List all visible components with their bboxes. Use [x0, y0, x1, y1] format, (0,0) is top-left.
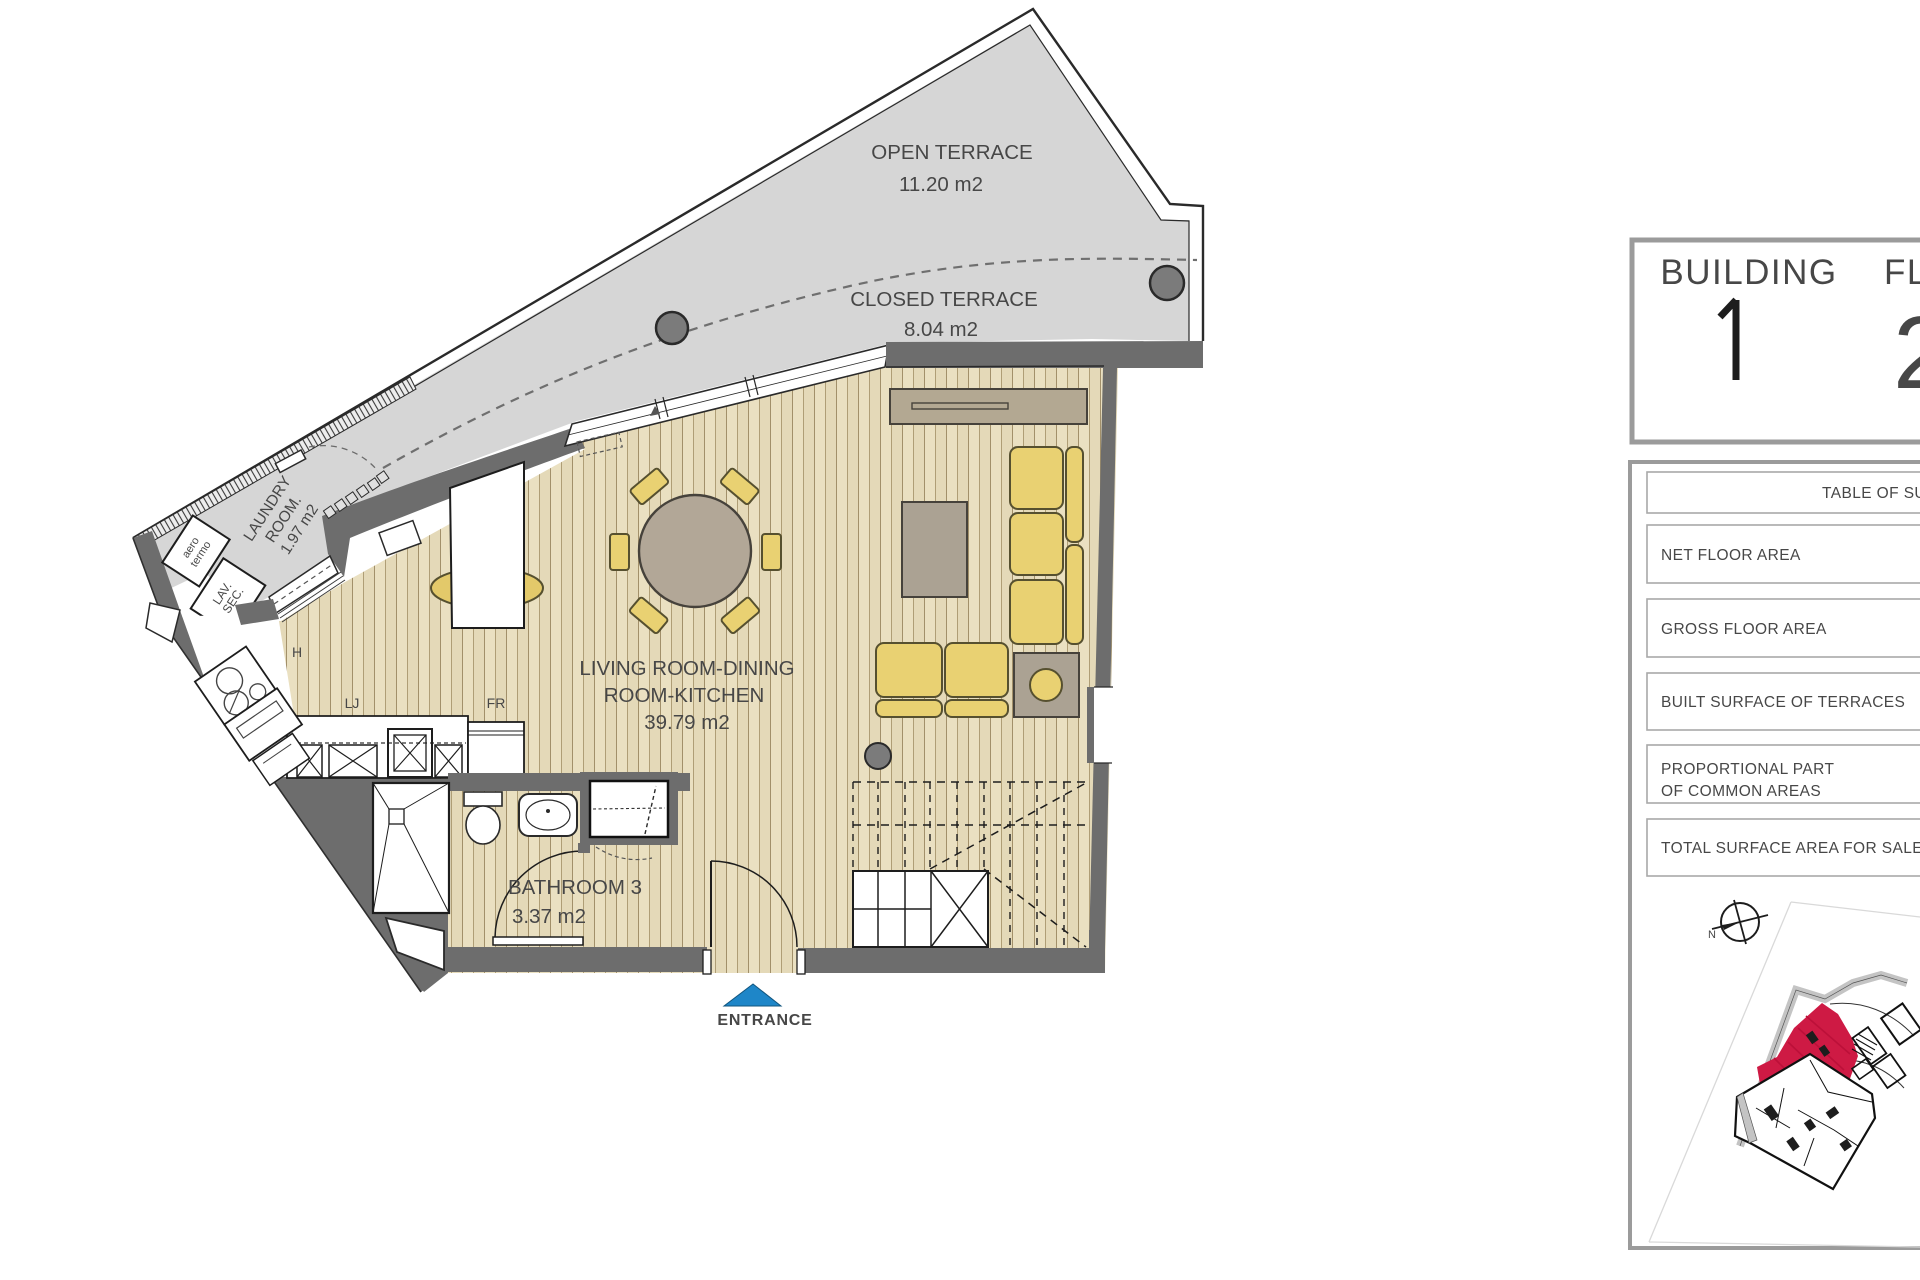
svg-text:8.04 m2: 8.04 m2	[904, 318, 978, 341]
svg-text:BUILDING: BUILDING	[1660, 253, 1837, 292]
svg-text:FR: FR	[487, 695, 506, 711]
svg-text:CLOSED TERRACE: CLOSED TERRACE	[850, 288, 1038, 311]
svg-text:NET FLOOR AREA: NET FLOOR AREA	[1661, 547, 1801, 564]
svg-text:39.79 m2: 39.79 m2	[644, 711, 729, 734]
svg-text:LJ: LJ	[345, 695, 360, 711]
svg-text:11.20 m2: 11.20 m2	[899, 173, 983, 196]
svg-text:ROOM-KITCHEN: ROOM-KITCHEN	[604, 684, 765, 707]
svg-text:H: H	[292, 644, 302, 660]
svg-text:2: 2	[1893, 295, 1920, 410]
svg-text:GROSS FLOOR AREA: GROSS FLOOR AREA	[1661, 621, 1827, 638]
svg-text:3.37 m2: 3.37 m2	[512, 905, 586, 928]
svg-text:OF COMMON AREAS: OF COMMON AREAS	[1661, 783, 1821, 800]
svg-text:BATHROOM 3: BATHROOM 3	[508, 876, 642, 899]
svg-text:TABLE OF SURFACES: TABLE OF SURFACES	[1822, 485, 1920, 502]
svg-text:OPEN TERRACE: OPEN TERRACE	[871, 141, 1032, 164]
svg-text:TOTAL SURFACE AREA FOR SALE: TOTAL SURFACE AREA FOR SALE	[1661, 840, 1920, 857]
svg-text:BUILT SURFACE OF TERRACES: BUILT SURFACE OF TERRACES	[1661, 694, 1905, 711]
svg-text:N: N	[1708, 929, 1716, 941]
svg-text:ENTRANCE: ENTRANCE	[717, 1012, 812, 1029]
svg-text:PROPORTIONAL PART: PROPORTIONAL PART	[1661, 761, 1834, 778]
svg-text:LIVING ROOM-DINING: LIVING ROOM-DINING	[579, 657, 794, 680]
svg-text:FLOOR: FLOOR	[1884, 253, 1920, 292]
